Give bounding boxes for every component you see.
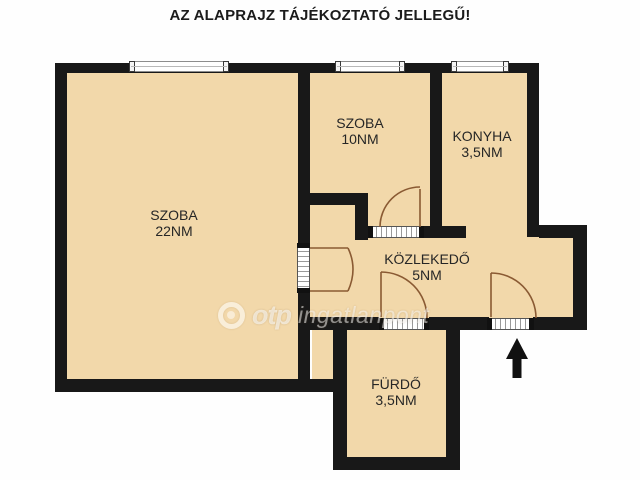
- room-label-furdo: FÜRDŐ 3,5NM: [326, 376, 466, 408]
- wall-konyha-bottom-stub: [442, 226, 466, 238]
- window-cap-icon: [129, 61, 135, 72]
- door-threshold-szoba10: [368, 226, 424, 238]
- threshold-cap: [529, 318, 534, 330]
- window-cap-icon: [451, 61, 457, 72]
- room-label-konyha: KONYHA 3,5NM: [412, 128, 552, 160]
- room-label-kozlekedo: KÖZLEKEDŐ 5NM: [347, 251, 507, 283]
- door-threshold-entrance: [487, 318, 534, 330]
- threshold-cap: [368, 226, 373, 238]
- room-name: SZOBA: [290, 115, 430, 131]
- threshold-cap: [487, 318, 492, 330]
- room-area: 3,5NM: [326, 392, 466, 408]
- room-name: FÜRDŐ: [326, 376, 466, 392]
- floor-plan-image: AZ ALAPRAJZ TÁJÉKOZTATÓ JELLEGŰ!: [0, 0, 640, 480]
- threshold-cap: [379, 318, 384, 330]
- wall-nook-top: [539, 225, 573, 238]
- threshold-cap: [297, 243, 310, 248]
- room-area: 5NM: [347, 267, 507, 283]
- room-label-szoba22: SZOBA 22NM: [104, 207, 244, 239]
- window-cap-icon: [399, 61, 405, 72]
- window-cap-icon: [223, 61, 229, 72]
- wall-outer-left: [55, 63, 67, 392]
- threshold-cap: [424, 318, 429, 330]
- wall-outer-right: [573, 225, 587, 330]
- wall-szoba22-right-upper: [298, 63, 310, 244]
- plan-disclaimer-title: AZ ALAPRAJZ TÁJÉKOZTATÓ JELLEGŰ!: [0, 7, 640, 24]
- room-name: SZOBA: [104, 207, 244, 223]
- entrance-arrow-icon: [506, 338, 528, 378]
- threshold-cap: [419, 226, 424, 238]
- window-cap-icon: [503, 61, 509, 72]
- window-szoba22: [130, 61, 228, 72]
- room-area: 22NM: [104, 223, 244, 239]
- door-threshold-szoba22: [297, 243, 310, 293]
- wall-hall-bottom-right: [533, 317, 575, 330]
- room-name: KÖZLEKEDŐ: [347, 251, 507, 267]
- room-area: 10NM: [290, 131, 430, 147]
- wall-szoba10-step: [355, 193, 368, 240]
- threshold-cap: [297, 288, 310, 293]
- door-threshold-furdo: [379, 318, 429, 330]
- wall-furdo-bottom: [333, 457, 460, 470]
- wall-szoba22-bottom: [55, 379, 338, 392]
- window-szoba10: [336, 61, 404, 72]
- window-cap-icon: [335, 61, 341, 72]
- window-konyha: [452, 61, 508, 72]
- room-area: 3,5NM: [412, 144, 552, 160]
- room-label-szoba10: SZOBA 10NM: [290, 115, 430, 147]
- room-name: KONYHA: [412, 128, 552, 144]
- wall-szoba22-right-lower: [298, 293, 310, 392]
